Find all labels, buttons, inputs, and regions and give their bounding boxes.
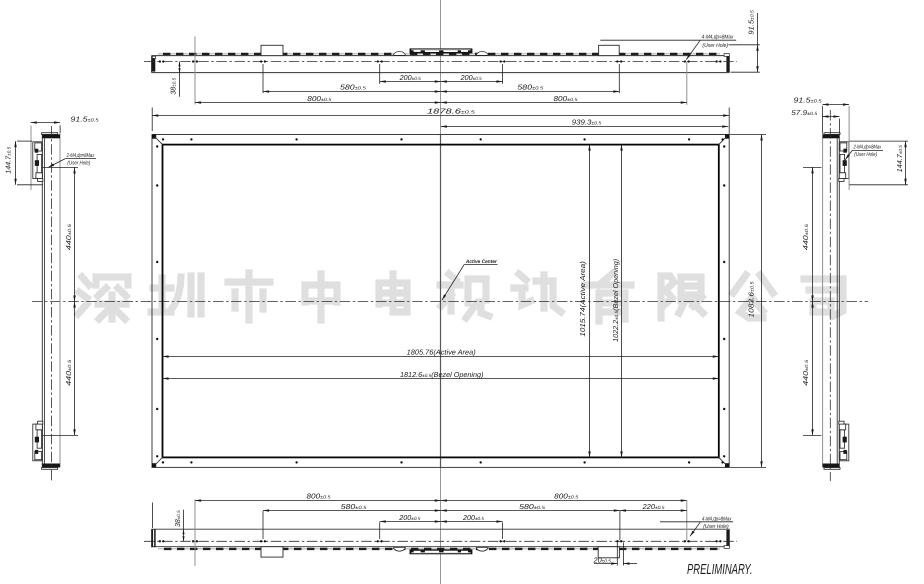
svg-text:800±0.5: 800±0.5 bbox=[307, 492, 331, 500]
svg-text:440±0.5: 440±0.5 bbox=[802, 224, 810, 251]
svg-text:144.7±0.5: 144.7±0.5 bbox=[4, 146, 12, 173]
svg-text:(User Hole): (User Hole) bbox=[703, 524, 729, 530]
svg-text:144.7±0.5: 144.7±0.5 bbox=[896, 145, 904, 172]
svg-text:800±0.5: 800±0.5 bbox=[554, 95, 578, 103]
svg-text:580±0.5: 580±0.5 bbox=[341, 503, 367, 511]
svg-text:1022.2±0.5(Bezel Opening): 1022.2±0.5(Bezel Opening) bbox=[612, 259, 620, 342]
svg-text:57.9±0.5: 57.9±0.5 bbox=[791, 109, 817, 117]
svg-text:91.5±0.5: 91.5±0.5 bbox=[794, 96, 823, 104]
svg-text:440±0.5: 440±0.5 bbox=[65, 359, 73, 386]
svg-text:38±0.5: 38±0.5 bbox=[174, 510, 182, 527]
svg-text:1805.76(Active Area): 1805.76(Active Area) bbox=[407, 349, 476, 357]
svg-text:(User Hole): (User Hole) bbox=[67, 160, 90, 166]
svg-text:Active Center: Active Center bbox=[465, 259, 498, 265]
svg-text:200±0.5: 200±0.5 bbox=[462, 514, 484, 522]
svg-text:200±0.5: 200±0.5 bbox=[460, 74, 482, 82]
svg-text:4-M4,dp=8Max: 4-M4,dp=8Max bbox=[702, 34, 734, 40]
svg-text:2-M4,dp=8Max: 2-M4,dp=8Max bbox=[66, 153, 95, 159]
svg-text:1878.6±0.5: 1878.6±0.5 bbox=[427, 108, 475, 116]
svg-text:20±0.5: 20±0.5 bbox=[592, 556, 611, 564]
svg-text:2-M4,dp=8Max: 2-M4,dp=8Max bbox=[853, 145, 882, 151]
svg-text:220±0.5: 220±0.5 bbox=[641, 503, 665, 511]
svg-text:(User Hole): (User Hole) bbox=[854, 152, 877, 158]
svg-text:800±0.5: 800±0.5 bbox=[307, 95, 331, 103]
svg-text:580±0.5: 580±0.5 bbox=[340, 84, 366, 92]
svg-text:PRELIMINARY.: PRELIMINARY. bbox=[687, 562, 753, 578]
svg-text:200±0.5: 200±0.5 bbox=[399, 74, 421, 82]
svg-text:800±0.5: 800±0.5 bbox=[554, 492, 578, 500]
svg-text:1812.6±0.5(Bezel Opening): 1812.6±0.5(Bezel Opening) bbox=[400, 371, 484, 379]
svg-text:91.5±0.5: 91.5±0.5 bbox=[747, 10, 755, 35]
svg-text:580±0.5: 580±0.5 bbox=[517, 84, 543, 92]
svg-text:580±0.5: 580±0.5 bbox=[519, 503, 545, 511]
svg-text:200±0.5: 200±0.5 bbox=[398, 514, 420, 522]
svg-text:1015.74(Active Area): 1015.74(Active Area) bbox=[579, 261, 587, 337]
svg-text:38±0.5: 38±0.5 bbox=[170, 78, 178, 95]
svg-text:939.3±0.5: 939.3±0.5 bbox=[572, 119, 602, 127]
svg-text:91.5±0.5: 91.5±0.5 bbox=[71, 115, 100, 123]
svg-text:(User Hole): (User Hole) bbox=[702, 43, 728, 49]
svg-text:440±0.5: 440±0.5 bbox=[65, 224, 73, 251]
svg-text:1083.6±0.5: 1083.6±0.5 bbox=[748, 281, 756, 318]
svg-text:440±0.5: 440±0.5 bbox=[802, 359, 810, 386]
